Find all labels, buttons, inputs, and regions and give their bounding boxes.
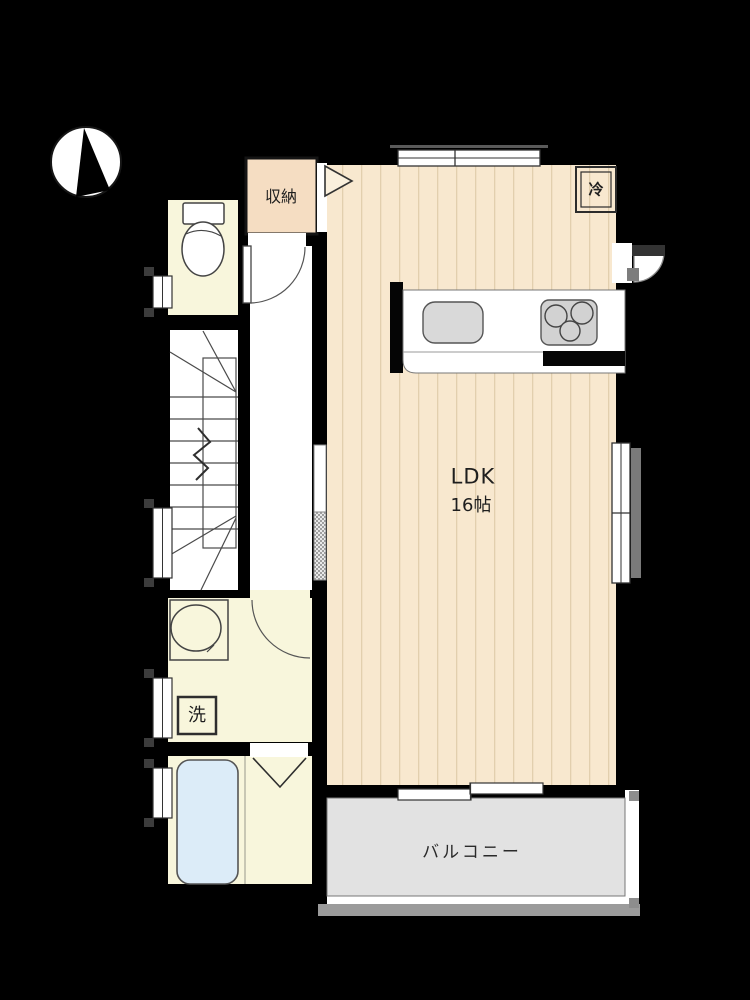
washroom-window: [144, 669, 172, 747]
bathroom-door-opening: [250, 743, 308, 757]
hallway-door-leaf: [243, 246, 251, 303]
stove-icon: [541, 300, 597, 345]
left-wall-windows: [144, 267, 172, 827]
ldk-right-window: [612, 443, 641, 583]
ldk-size-label: 16帖: [451, 497, 492, 515]
toilet-window: [144, 267, 172, 317]
hallway: [243, 233, 312, 590]
balcony-railing: [318, 904, 640, 916]
storage-label: 収納: [265, 189, 297, 205]
stairs-window: [144, 499, 172, 587]
bathtub: [177, 760, 238, 884]
washroom-door-opening: [250, 590, 310, 600]
washing-machine-label: 洗: [188, 707, 206, 725]
kitchen-half-wall: [543, 351, 625, 366]
entrance-door-leaf: [632, 245, 665, 256]
ldk-label: LDK: [451, 467, 496, 488]
kitchen-sink-icon: [423, 302, 483, 343]
floor-plan-drawing: [0, 0, 750, 1000]
bathroom-window: [144, 759, 172, 827]
staircase: [170, 330, 238, 590]
bathroom: [168, 743, 312, 884]
refrigerator-label: 冷: [588, 183, 603, 198]
kitchen-counter: [390, 282, 625, 373]
toilet-fixture-icon: [182, 203, 224, 276]
toilet-room: [168, 200, 238, 315]
kitchen-wall-stub: [390, 282, 403, 373]
balcony-label: バルコニー: [422, 845, 522, 862]
floor-plan-canvas: 収納 冷 LDK 16帖 洗 バルコニー: [0, 0, 750, 1000]
hallway-door-opening: [248, 233, 306, 247]
entrance-door: [612, 243, 665, 283]
compass-north-icon: [51, 127, 121, 197]
ldk-sliding-door: [314, 445, 326, 580]
ldk-top-window: [390, 145, 548, 166]
balcony-sliding-door: [398, 783, 543, 800]
